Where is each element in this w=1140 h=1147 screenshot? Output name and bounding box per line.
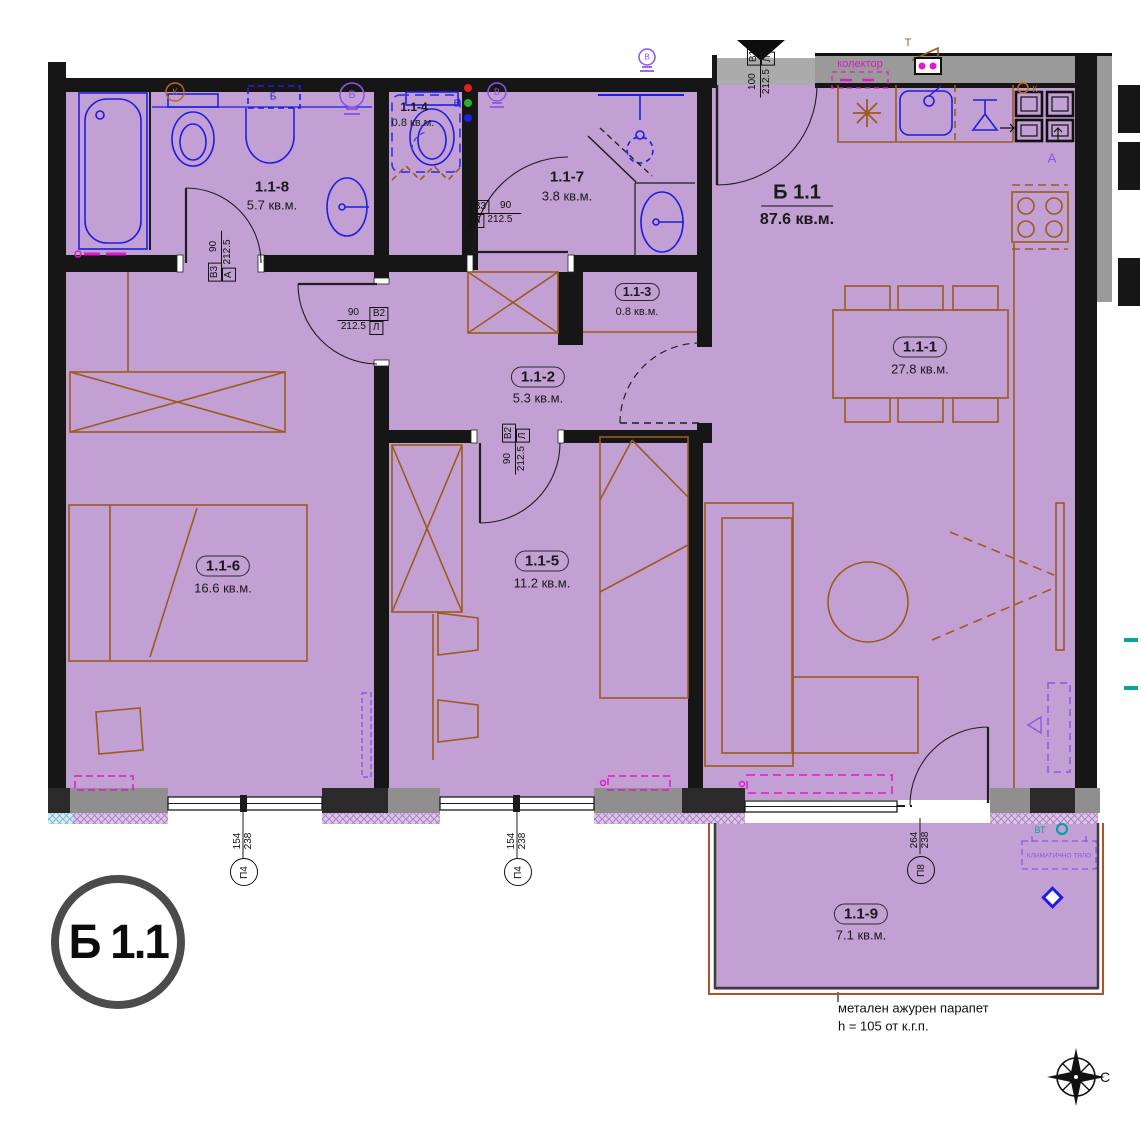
window-mark-dims: 154 238 [506,833,528,850]
t-mark-label: Т [905,37,912,49]
compass-north-label: С [1100,1069,1110,1085]
window-mark-dims: 154 238 [232,833,254,850]
door-hinge: Л [761,52,775,66]
door-height: 212.5 [761,66,775,98]
window-id: П4 [513,866,524,879]
window-mark-circle: П4 [504,858,532,886]
door-type: В3 [208,262,222,281]
room-area-1-1-7: 3.8 кв.м. [542,189,592,204]
floor-plan-page: Б 1.1 87.6 кв.м. 1.1-1 27.8 кв.м. 1.1-2 … [0,0,1140,1147]
railing-note-line1: метален ажурен парапет [838,1000,989,1017]
room-label-1-1-9: 1.1-9 [834,904,888,925]
b-mark-label: Б [270,92,277,103]
window-width: 264 [909,832,920,849]
window-width: 154 [232,833,243,850]
room-area-1-1-8: 5.7 кв.м. [247,198,297,213]
door-hinge: Л [369,321,383,335]
room-area-1-1-9: 7.1 кв.м. [836,928,886,943]
door-type: В1 [747,46,761,65]
door-type: В3 [470,200,489,214]
v-mark-label: В [454,99,461,110]
ac-unit-label: КЛИМАТИЧНО ТЯЛО [1027,853,1091,860]
hob-asterisk-icon [853,99,881,127]
v-mark-label: В [494,87,500,97]
door-width: 90 [502,443,516,475]
riser-dots [464,84,472,122]
room-label-1-1-4: 1.1-4 [400,100,427,114]
apartment-badge-text: Б 1.1 [68,915,167,970]
apartment-title: Б 1.1 [761,182,833,207]
v-mark-label: В [348,89,355,101]
apartment-badge: Б 1.1 [51,875,185,1009]
door-height: 212.5 [484,214,516,228]
room-area-1-1-1: 27.8 кв.м. [891,362,949,377]
compass-rose-icon [1047,1048,1105,1106]
v-mark-label: В [644,53,649,62]
door-mark-v3l: В390 Л212.5 [470,200,521,228]
door-width: 90 [337,307,369,321]
door-hinge: Л [516,429,530,443]
room-label-1-1-6: 1.1-6 [196,556,250,577]
door-hinge: А [222,268,236,282]
railing-note-line2: h = 105 от к.г.п. [838,1018,929,1035]
door-type: В2 [502,423,516,442]
room-label-1-1-2: 1.1-2 [511,367,565,388]
door-height: 212.5 [222,236,236,268]
window-mark-dims: 264 238 [909,832,931,849]
door-hinge: Л [470,214,484,228]
door-type: В2 [369,307,388,321]
room-label-1-1-3: 1.1-3 [615,283,660,301]
window-height: 238 [517,833,528,850]
room-area-1-1-5: 11.2 кв.м. [514,576,571,591]
door-mark-v2l-bedroom: 90В2 212.5Л [337,307,388,335]
door-width: 90 [208,230,222,262]
room-area-1-1-4: 0.8 кв.м. [392,117,435,129]
door-height: 212.5 [337,321,369,335]
window-mark-circle: П8 [907,856,935,884]
room-label-1-1-7: 1.1-7 [550,169,584,186]
door-width: 90 [490,200,522,214]
electric-box [915,58,941,74]
room-area-1-1-2: 5.3 кв.м. [513,391,563,406]
door-mark-v3a: В390 А212.5 [208,230,236,281]
door-width: 100 [747,66,761,98]
door-height: 212.5 [516,443,530,475]
window-width: 154 [506,833,517,850]
window-mark-circle: П4 [230,858,258,886]
vt-mark-label: ВТ [1035,825,1046,835]
room-label-1-1-5: 1.1-5 [515,551,569,572]
room-label-1-1-1: 1.1-1 [893,337,947,358]
k-mark-label: К [1032,84,1037,94]
a-mark-label: А [1048,151,1057,166]
room-label-1-1-8: 1.1-8 [255,179,289,196]
k-mark-label: К [172,87,177,97]
collector-label: колектор [837,58,882,70]
window-id: П8 [916,864,927,877]
window-height: 238 [243,833,254,850]
apartment-title-area: 87.6 кв.м. [760,211,834,229]
door-mark-v2l-room5: 90В2 212.5Л [502,423,530,474]
room-area-1-1-6: 16.6 кв.м. [194,581,252,596]
window-id: П4 [239,866,250,879]
door-mark-v1l-entrance: 100В1 212.5Л [747,46,775,97]
window-height: 238 [920,832,931,849]
room-area-1-1-3: 0.8 кв.м. [616,306,659,318]
